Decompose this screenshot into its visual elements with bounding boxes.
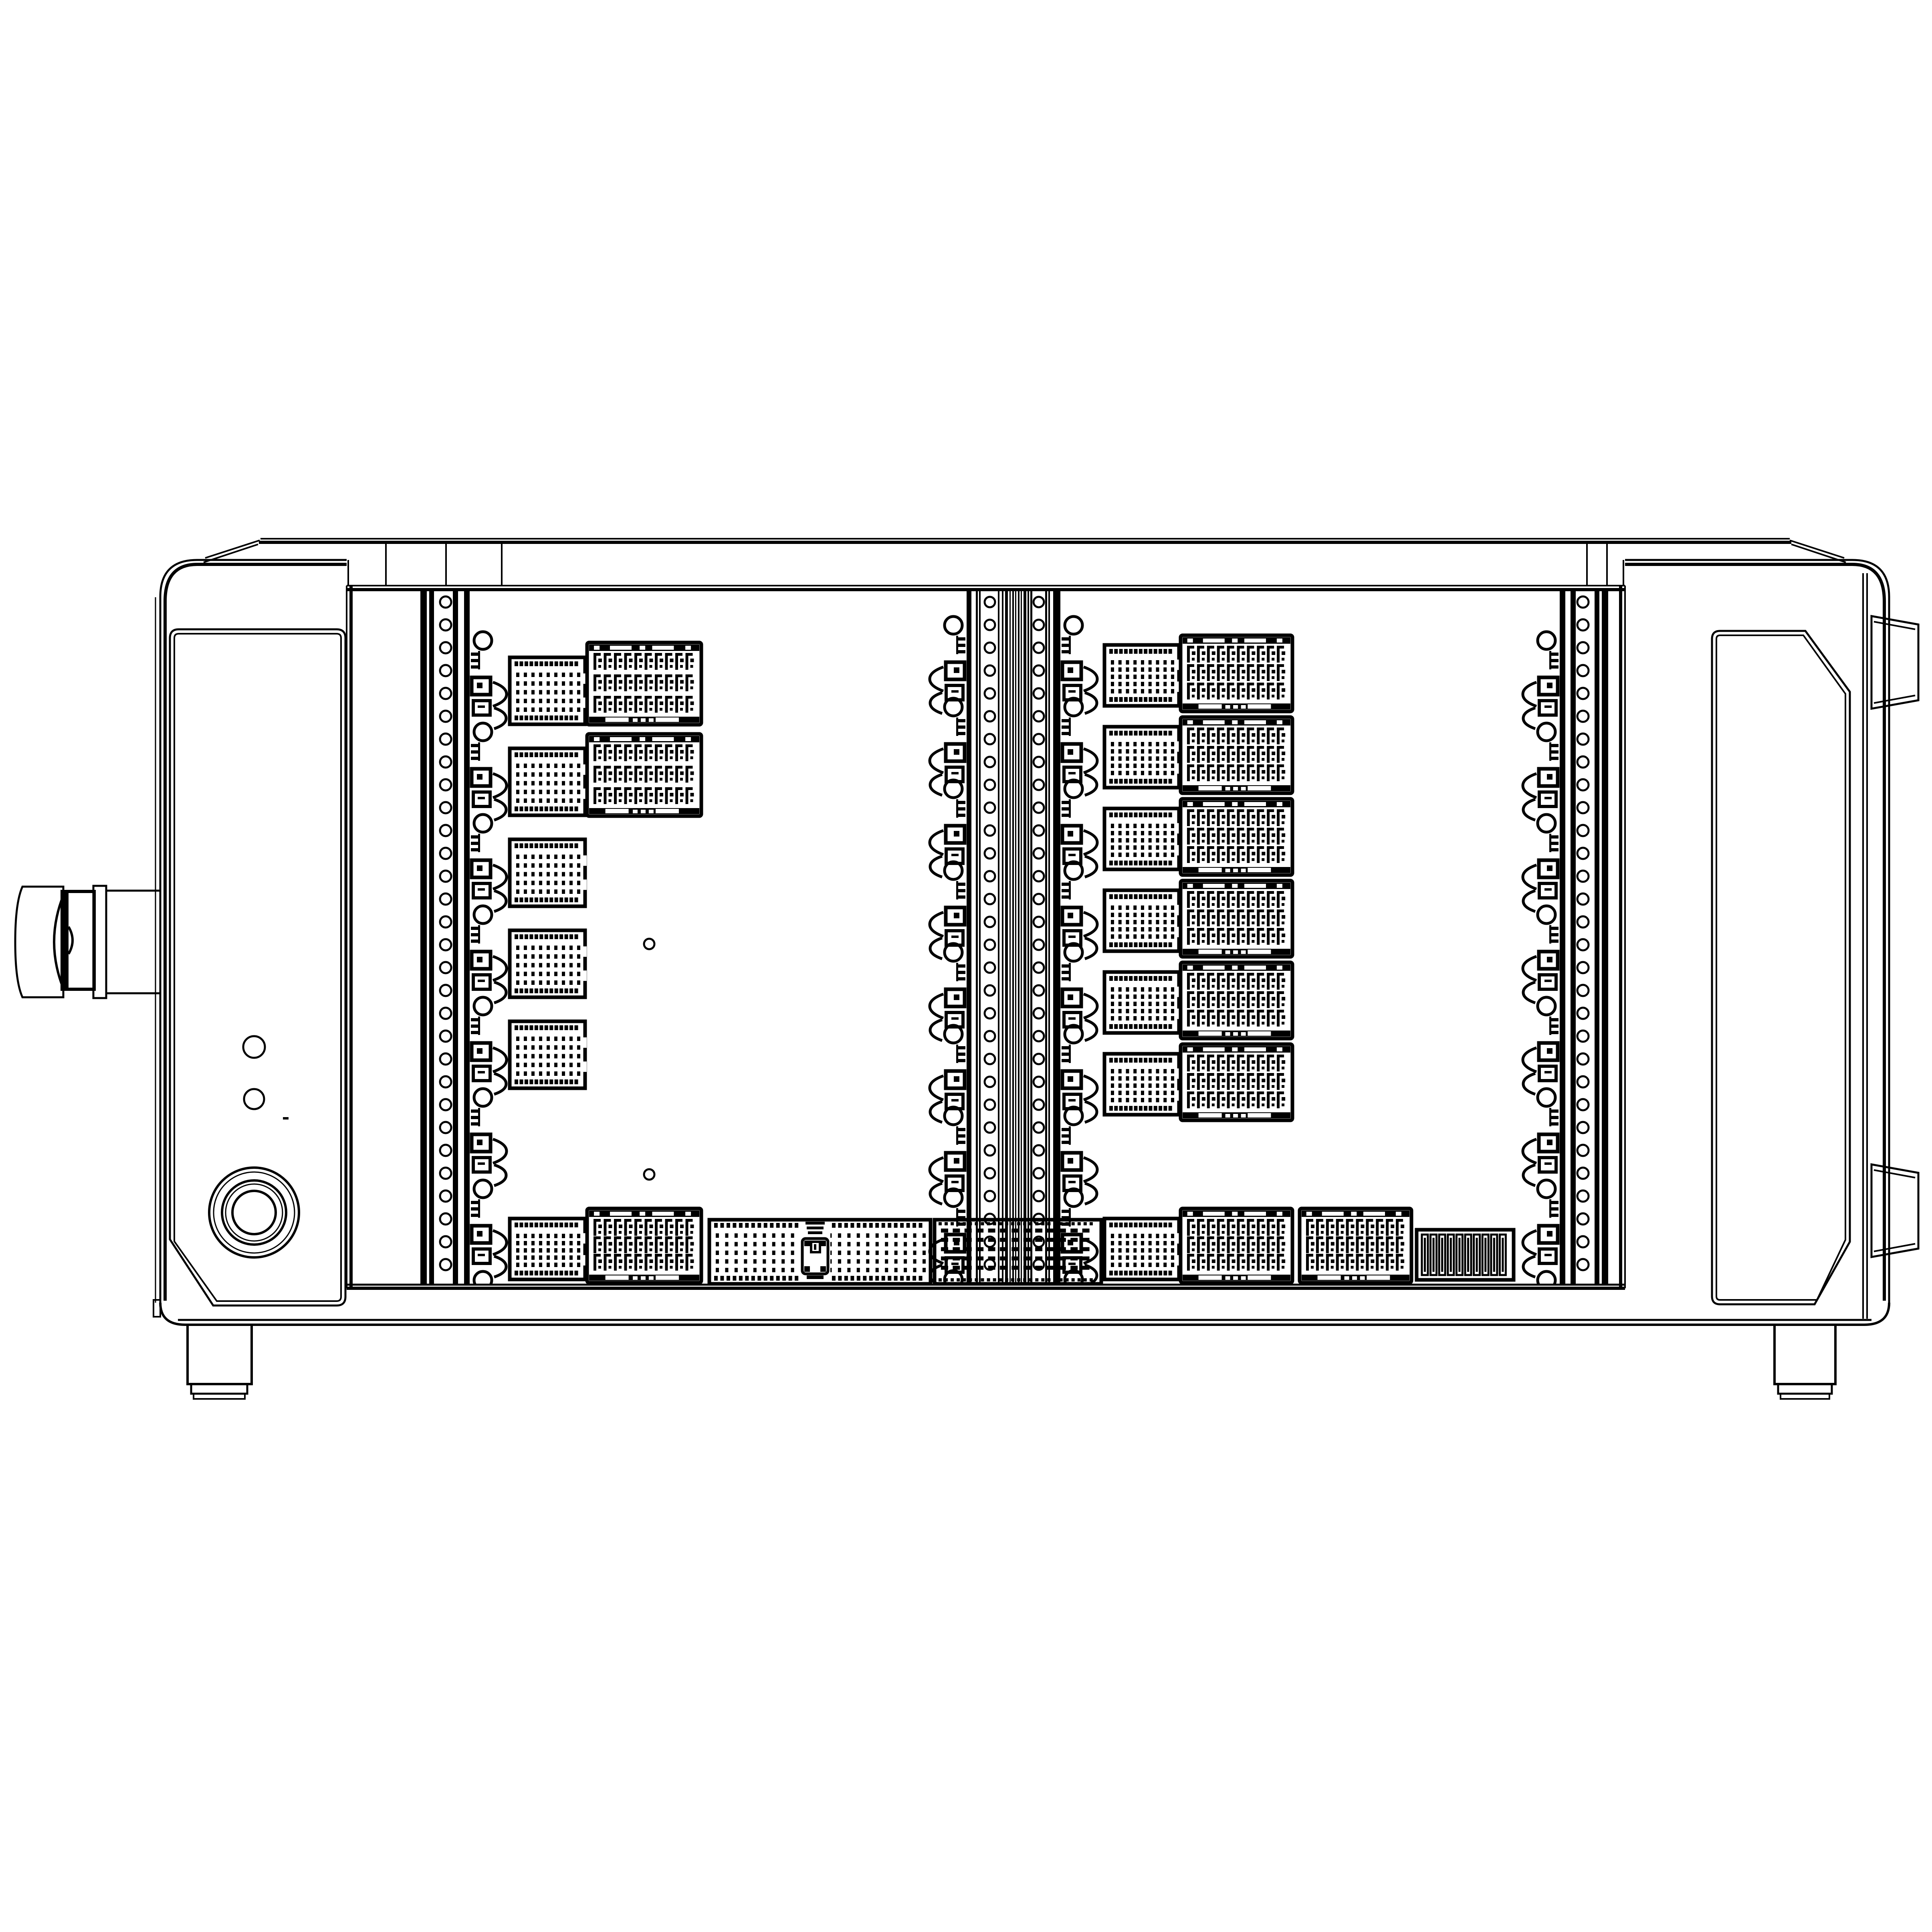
grid-bottom-slot [606,809,629,813]
dot [1163,742,1167,746]
cell-bar-top [636,653,642,656]
cell-bar-top [1278,1055,1284,1057]
cell-dot [1252,688,1255,692]
cell-dot [1232,821,1235,824]
cell-dot [1252,833,1255,837]
cell-dot [1391,1249,1393,1251]
terminal-square-pin [1547,1140,1552,1145]
cell-bar-top [656,1254,662,1257]
dot [791,1251,794,1255]
dash [559,715,563,720]
terminal-square-slot [1544,1071,1552,1073]
cell-dot [598,793,602,796]
bold-dash [1035,1247,1042,1251]
cell-dot [1262,1003,1264,1006]
fin-core [1467,1238,1469,1272]
cell-dot [1272,752,1275,755]
cell-dot [1272,1085,1274,1088]
dash [975,1278,978,1281]
dash [1114,861,1118,865]
fin-core [1493,1238,1495,1272]
cell-dot [670,778,673,781]
cell-dot [1262,1060,1265,1064]
terminal-comb-spine [478,1199,480,1218]
cell-dot [1282,1249,1284,1251]
terminal-comb-spine [1549,1017,1551,1035]
dash [519,988,523,993]
cell-bar-top [1248,846,1254,849]
dot [1133,660,1137,665]
cell-dot [1282,740,1284,742]
dot [1111,1016,1114,1021]
cell-bar-top [606,744,611,747]
dash [525,806,528,811]
dash [951,1278,954,1281]
dash [1124,1223,1128,1227]
dot [1141,824,1144,828]
dash [1163,976,1167,981]
dash [575,806,578,811]
cell-dot [1192,997,1195,1000]
dash [549,934,553,939]
bold-dash [965,1238,972,1242]
cell-bar-top [1278,828,1284,831]
grid-top-slot [1203,1212,1225,1216]
dot [524,690,527,695]
cell-bar-top [667,653,672,656]
dot [923,1242,926,1247]
dot [524,855,527,859]
cell-dot [1272,1097,1275,1101]
dot [516,972,519,976]
dot [577,1234,580,1238]
cell-bar-top [595,744,601,747]
dot [524,963,527,968]
dot [791,1268,794,1272]
dash [1159,894,1162,899]
dot [1163,1241,1167,1245]
cell-dot [1242,897,1246,900]
grid-top-notch [1232,802,1238,806]
dot [1171,764,1174,768]
dash [1139,894,1143,899]
dot [524,781,527,786]
dot [1171,742,1174,746]
dot [857,1251,860,1255]
dot [1126,742,1129,746]
cell-dot [1252,915,1255,919]
grid-top-notch [1232,1212,1238,1216]
cell-dot [1272,758,1274,761]
cell-bar-top [1229,1254,1234,1257]
dot [1156,1234,1159,1238]
cell-dot [1282,940,1284,943]
dot [1118,831,1122,835]
bold-dash [988,1238,995,1242]
grid-top-notch [1277,1047,1282,1051]
dot [539,881,542,885]
dot [1126,1241,1129,1245]
terminal-comb-tooth [1062,964,1070,968]
dot [569,1234,573,1238]
cell-dot [1222,758,1225,761]
dot [1149,853,1152,857]
paper-background [0,0,1932,1932]
cell-dot [680,680,684,684]
cell-dot [1282,651,1285,655]
dot [1133,1248,1137,1253]
terminal-comb-tooth [1062,719,1070,722]
bold-dash [1047,1247,1054,1251]
cell-dot [1222,695,1225,697]
dash [1060,1278,1063,1281]
cell-bar-top [595,1219,601,1222]
dot [1163,934,1167,939]
dot [577,863,580,868]
dash [1134,861,1138,865]
cell-dot [619,1259,622,1263]
cell-dot [680,799,683,802]
dot [539,946,542,950]
cell-bar-top [1239,1055,1244,1057]
rail-bar [976,590,978,1285]
dot [1156,1098,1159,1102]
dash [575,988,578,993]
dash [1139,861,1143,865]
cell-bar-top [1338,1254,1343,1257]
dot [554,1037,557,1041]
cell-dot [1202,840,1205,843]
cell-bar-top [1239,909,1244,912]
terminal-square-pin [477,957,482,962]
cell-dot [660,701,663,705]
cell-dot [1232,833,1236,837]
cell-bar-top [616,675,621,677]
cell-bar-top [1268,1254,1274,1257]
terminal-comb-tooth [471,1025,479,1028]
cell-dot [1272,858,1274,861]
terminal-square-pin [954,1158,959,1164]
cell-dot [1252,740,1254,742]
dot [1156,1002,1159,1006]
cell-bar-top [1268,828,1274,831]
cell-bar-top [1229,891,1234,894]
cell-bar-top [1358,1254,1363,1257]
cell-dot [690,687,693,689]
dash [1109,731,1113,736]
dash [1149,1106,1152,1111]
cell-bar-top [616,653,621,656]
dot [562,1071,565,1076]
cell-dot [1262,770,1265,774]
cell-dot [650,750,653,754]
cell-dot [1262,1231,1264,1234]
cell-dot [1222,1097,1225,1101]
dot [1149,845,1152,850]
dot [547,1071,550,1076]
cell-dot [1242,688,1246,692]
dot [554,781,557,786]
dash [569,897,573,902]
cell-bar-top [1229,973,1234,976]
cell-bar-top [1189,828,1194,831]
grid-bottom-slot [1248,1113,1271,1118]
cell-dot [609,1242,612,1246]
dash [1169,697,1172,702]
dot [569,699,573,703]
cell-dot [1202,1079,1205,1082]
dot [1118,1255,1122,1260]
dash [1163,1223,1167,1227]
dot [1141,1002,1144,1006]
dot [1111,1263,1114,1267]
dash [549,1079,553,1084]
bold-dash [1059,1266,1066,1270]
dash [999,1222,1002,1225]
cell-bar-top [1239,1237,1244,1239]
grid-bottom-notch [633,718,638,722]
dot [524,980,527,985]
grid-bottom-notch [1352,1276,1357,1280]
dot [1149,934,1152,939]
cell-dot [1381,1231,1383,1234]
dot [531,1054,535,1059]
cell-dot [650,756,652,759]
dash [535,988,538,993]
cell-dot [690,701,694,705]
grid-top-slot [1244,884,1266,888]
cell-dot [1381,1242,1384,1246]
dot [1111,913,1114,917]
cell-bar-top [636,1237,642,1239]
dash [575,1079,578,1084]
cell-bar-top [1229,809,1234,812]
dot [516,889,519,894]
dot [1118,913,1122,917]
bold-dash [1000,1247,1007,1251]
dot [577,963,580,968]
dot [577,764,580,768]
cell-bar-top [1258,1010,1264,1012]
dot [516,872,519,877]
cell-dot [650,772,653,775]
cell-bar-top [1268,928,1274,931]
grid-top-notch [1232,884,1238,888]
dot [781,1259,785,1264]
dot [1171,756,1174,761]
cell-dot [1272,1242,1275,1246]
cell-dot [1212,858,1215,861]
grid-bottom-notch [1225,1032,1230,1036]
rail-bar [1030,590,1032,1285]
cell-bar-top [646,787,652,790]
cell-dot [1222,1022,1225,1025]
cell-dot [1222,776,1225,779]
terminal-comb-spine [478,742,480,761]
dash [1144,1223,1147,1227]
dash [957,1278,960,1281]
cell-dot [598,1259,602,1263]
dash [1035,1222,1038,1225]
cell-dot [1272,840,1274,843]
cell-dot [619,778,622,781]
cell-dot [1202,758,1205,761]
cell-dot [1252,940,1254,943]
cell-bar-top [1248,683,1254,685]
dash [565,1079,568,1084]
dot [894,1251,898,1255]
bold-dash [1059,1229,1066,1233]
dot [1171,682,1174,686]
dash [981,1278,984,1281]
dot [1171,1248,1174,1253]
dash [720,1276,724,1281]
dot [1163,756,1167,761]
dot [1126,831,1129,835]
dot [1141,764,1144,768]
terminal-comb-spine [1549,651,1551,669]
cell-dot [1242,1266,1245,1269]
cell-bar-top [1268,1010,1274,1012]
dash [1114,1223,1118,1227]
dash [1035,1278,1038,1281]
dash [1154,861,1157,865]
terminal-comb-tooth [957,807,965,810]
dash [1005,1278,1008,1281]
cell-dot [670,1249,673,1251]
dot [1141,1016,1144,1021]
bold-dash [1082,1266,1090,1270]
cell-dot [1202,770,1205,774]
dot [539,1241,542,1245]
dot [516,1037,519,1041]
cell-dot [1262,1259,1265,1263]
dash [945,1222,948,1225]
cell-bar-top [1189,1219,1194,1222]
bold-dash [1011,1266,1019,1270]
cell-dot [650,1242,653,1246]
terminal-comb-spine [1069,1126,1071,1145]
dot [569,798,573,803]
cell-bar-top [1239,846,1244,849]
dash [1114,976,1118,981]
dash [838,1223,842,1228]
dot [1171,845,1174,850]
bold-dash [965,1266,972,1270]
dot [516,1071,519,1076]
grid-bottom-notch [1225,705,1230,709]
cell-dot [1361,1249,1364,1251]
dot [1133,905,1137,910]
cell-bar-top [1189,891,1194,894]
cell-bar-top [1219,1073,1224,1076]
cell-bar-top [1278,809,1284,812]
cell-bar-top [1367,1254,1373,1257]
terminal-comb-tooth [471,1031,479,1034]
cell-bar-top [1209,809,1214,812]
grid-bottom-notch [1233,869,1238,872]
cell-dot [1252,1266,1254,1269]
dash [565,661,568,666]
terminal-square-pin [1068,994,1073,1000]
dash [1159,649,1162,654]
dot [554,881,557,885]
cell-bar-top [646,696,652,699]
terminal-comb-tooth [957,895,965,899]
dot [531,1255,535,1260]
dash [1119,1106,1123,1111]
terminal-square-slot [1068,772,1076,774]
cell-dot [1252,1022,1254,1025]
terminal-square-pin [477,683,482,688]
cell-dot [1202,985,1205,988]
cell-bar-top [1239,828,1244,831]
cage-bundle-line [1005,590,1008,1285]
cell-dot [598,756,601,759]
terminal-comb-tooth [1062,1141,1070,1144]
cell-bar-top [687,1219,693,1222]
dot [554,764,557,768]
terminal-square-pin [954,913,959,918]
cell-bar-top [1209,846,1214,849]
cell-bar-top [1229,1091,1234,1094]
dash [757,1276,761,1281]
fin-core [1458,1238,1460,1272]
grid-top-notch [685,1212,691,1216]
dash [1149,942,1152,947]
dot [577,681,580,686]
dot [1171,1255,1174,1260]
terminal-comb-tooth [957,814,965,817]
cell-dot [1212,903,1215,906]
dot [791,1233,794,1238]
dash [1134,1106,1138,1111]
dash [565,715,568,720]
bold-dash [965,1247,972,1251]
dash [1139,976,1143,981]
cell-bar-top [1239,1091,1244,1094]
cell-dot [1212,978,1215,982]
grid-bottom-slot [606,717,629,722]
dash [549,1025,553,1030]
dot [516,772,519,777]
cell-dot [629,750,633,754]
dot [1141,1241,1144,1245]
grid-top-slot [1322,1212,1344,1216]
dash [1144,861,1147,865]
cell-dot [1282,1097,1285,1101]
dot [1171,913,1174,917]
dash [1144,1271,1147,1275]
cell-bar-top [1308,1237,1313,1239]
cell-dot [639,1266,642,1269]
dash [559,1271,563,1275]
cell-bar-top [1258,1055,1264,1057]
dot [1118,742,1122,746]
grid-bottom-slot [1199,1113,1222,1118]
dash [529,897,533,902]
dash [1154,942,1157,947]
bold-dash [1047,1229,1054,1233]
dot [539,1234,542,1238]
dot [524,673,527,677]
dot [725,1268,728,1272]
grid-top-notch [1306,1212,1312,1216]
bold-dash [953,1247,960,1251]
cell-dot [1232,688,1236,692]
cell-dot [1282,985,1284,988]
dot [876,1233,879,1238]
